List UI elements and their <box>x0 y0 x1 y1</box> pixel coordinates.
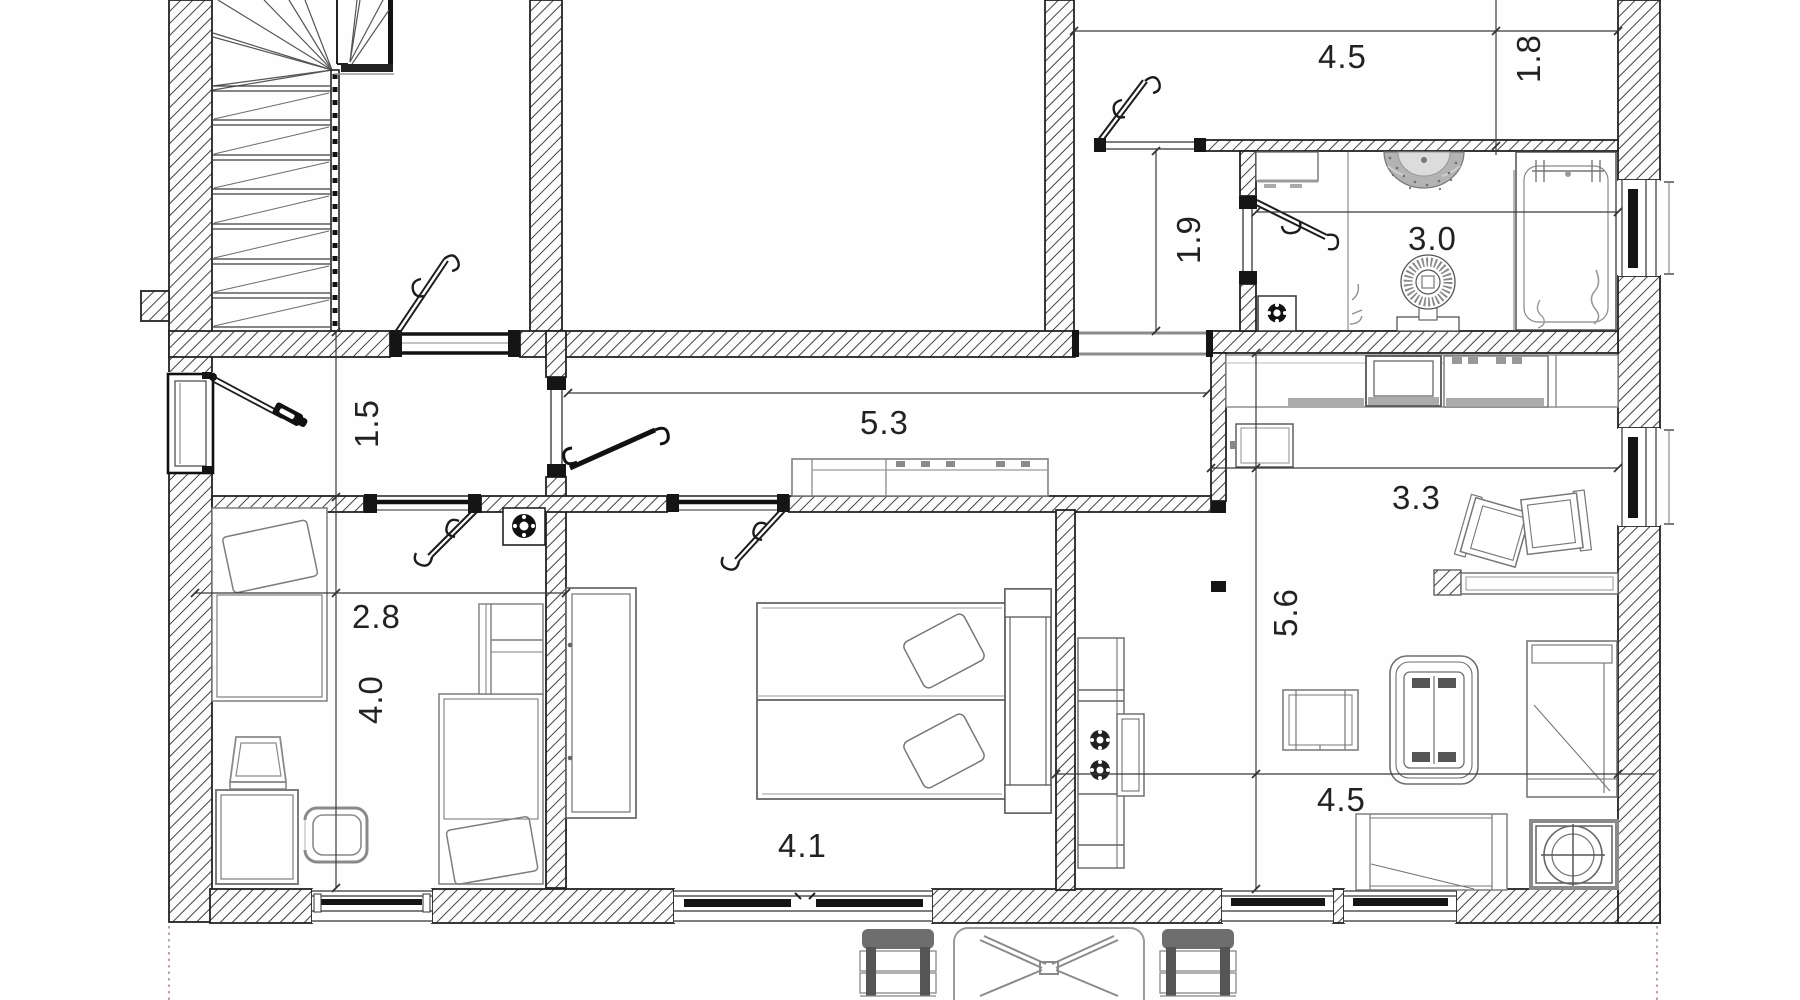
svg-text:1.8: 1.8 <box>1510 34 1547 83</box>
svg-text:5.6: 5.6 <box>1267 588 1304 637</box>
svg-text:1.5: 1.5 <box>348 399 385 448</box>
svg-text:3.3: 3.3 <box>1392 479 1441 516</box>
svg-text:4.0: 4.0 <box>352 675 389 724</box>
svg-text:4.5: 4.5 <box>1318 38 1367 75</box>
svg-text:4.1: 4.1 <box>778 827 827 864</box>
svg-text:5.3: 5.3 <box>860 404 909 441</box>
svg-text:1.9: 1.9 <box>1170 215 1207 264</box>
svg-text:3.0: 3.0 <box>1408 220 1457 257</box>
svg-text:2.8: 2.8 <box>352 598 401 635</box>
svg-text:4.5: 4.5 <box>1317 781 1366 818</box>
